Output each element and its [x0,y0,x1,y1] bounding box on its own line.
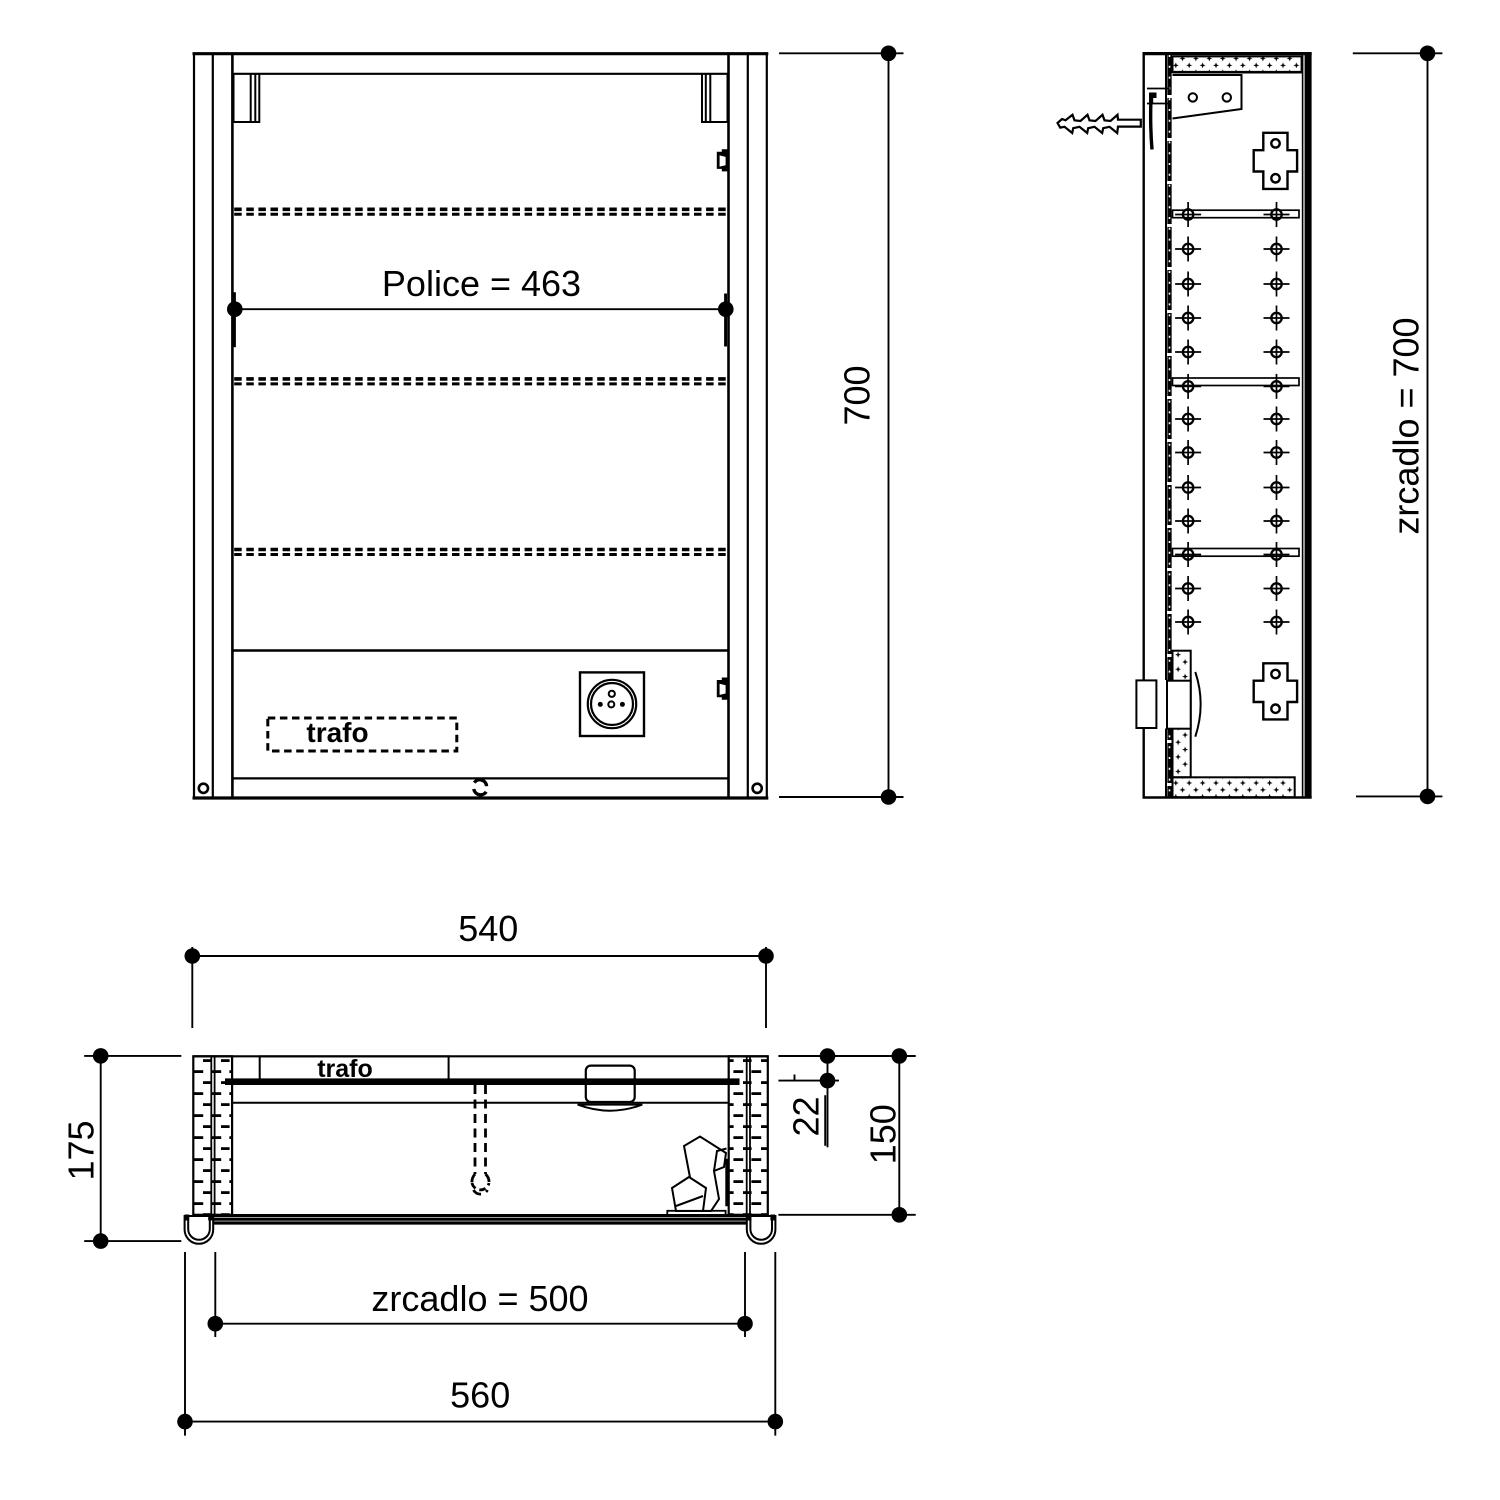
svg-text:trafo: trafo [306,717,368,748]
svg-text:175: 175 [61,1120,102,1180]
svg-text:zrcadlo = 700: zrcadlo = 700 [1386,317,1427,534]
svg-text:Police = 463: Police = 463 [382,263,581,304]
svg-text:zrcadlo = 500: zrcadlo = 500 [371,1278,588,1319]
svg-text:22: 22 [786,1096,827,1136]
svg-text:trafo: trafo [317,1055,373,1083]
svg-text:540: 540 [458,908,518,949]
svg-text:700: 700 [837,365,878,425]
svg-text:150: 150 [863,1104,904,1164]
svg-text:560: 560 [450,1375,510,1416]
